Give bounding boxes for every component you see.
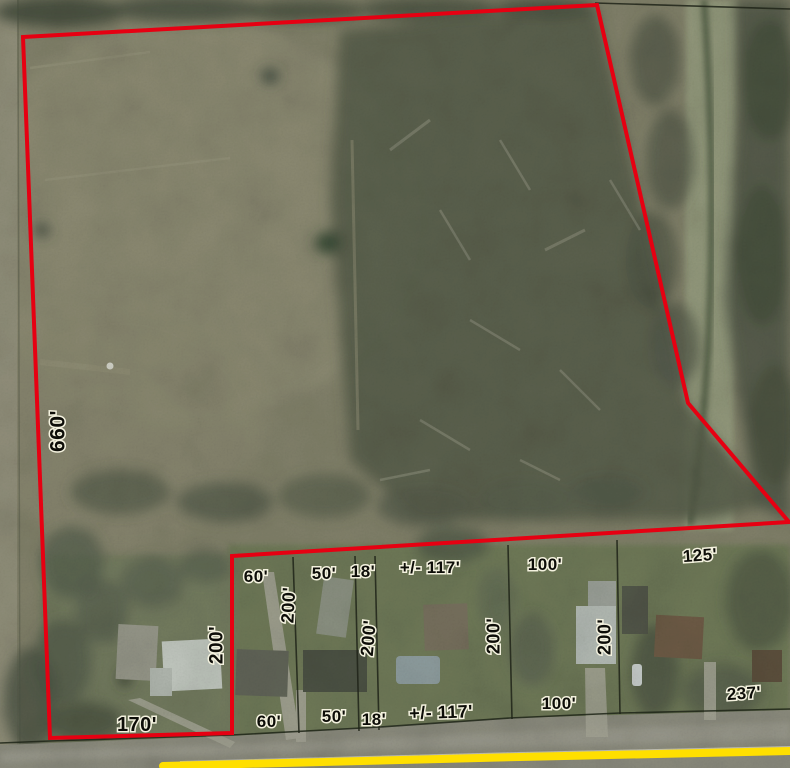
dimension-label: 50': [312, 564, 336, 583]
dimension-label: +/- 117': [400, 558, 461, 577]
dimension-label: 170': [117, 714, 157, 736]
dimension-label: 660': [46, 410, 69, 452]
dimension-label: 200': [277, 586, 299, 623]
dimension-label: 60': [244, 567, 268, 586]
dimension-label: 200': [483, 618, 503, 654]
dimension-label: 200': [207, 626, 228, 664]
dimension-label: 200': [357, 619, 380, 657]
dimension-label: 125': [682, 545, 718, 566]
dimension-label: 60': [257, 712, 281, 731]
dimension-label: 237': [726, 683, 762, 704]
aerial-parcel-map: 660'170'200'60'200'50'18'+/- 117'100'125…: [0, 0, 790, 768]
dimension-label: 18': [362, 710, 386, 729]
map-scene: 660'170'200'60'200'50'18'+/- 117'100'125…: [0, 0, 790, 768]
dimension-label: 18': [351, 562, 375, 581]
dimension-label: 100': [542, 694, 576, 713]
dimension-label: 100': [528, 555, 562, 574]
dimension-label: +/- 117': [409, 701, 473, 723]
dimension-label: 50': [322, 707, 346, 726]
dimension-label: 200': [594, 619, 614, 655]
